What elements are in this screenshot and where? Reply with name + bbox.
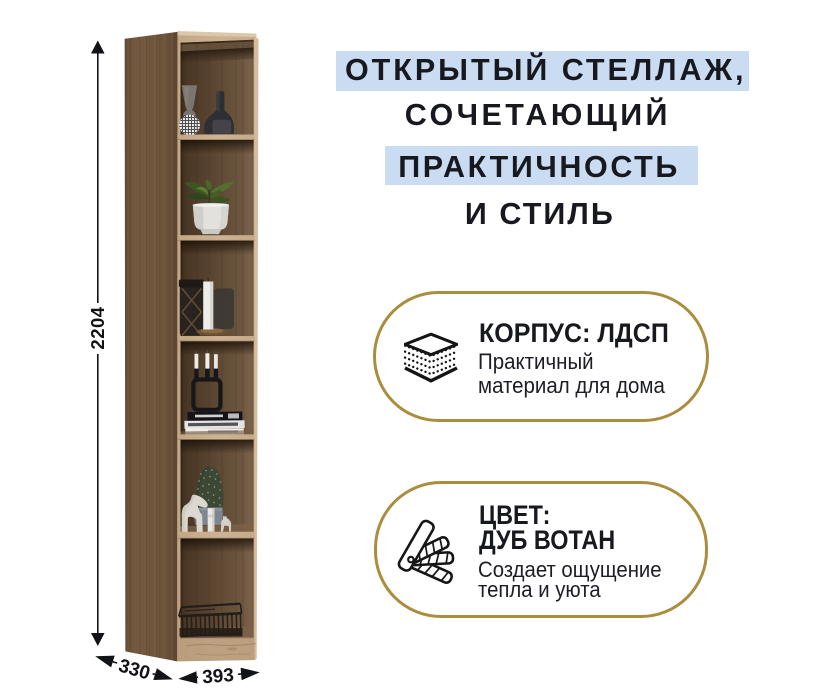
svg-text:393: 393 bbox=[201, 665, 234, 688]
svg-text:2204: 2204 bbox=[87, 306, 108, 349]
svg-text:330: 330 bbox=[116, 656, 152, 685]
